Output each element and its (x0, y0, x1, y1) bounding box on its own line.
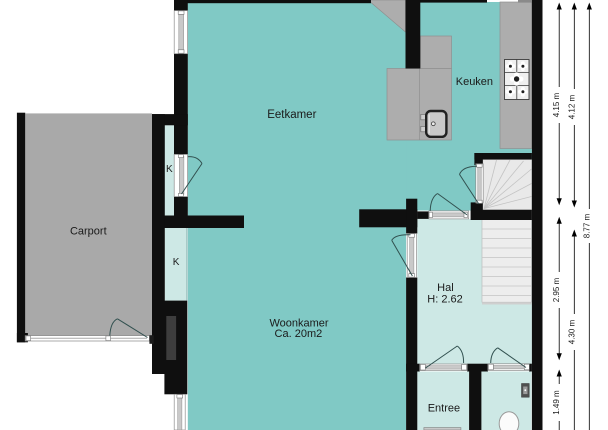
svg-text:4.30 m: 4.30 m (567, 319, 576, 344)
svg-text:2.95 m: 2.95 m (552, 277, 561, 302)
svg-text:Eetkamer: Eetkamer (267, 109, 316, 121)
svg-text:K: K (173, 257, 180, 268)
svg-text:Carport: Carport (70, 226, 107, 238)
svg-text:Hal: Hal (437, 282, 454, 294)
svg-text:K: K (166, 164, 173, 175)
svg-text:Entree: Entree (428, 403, 460, 415)
svg-text:8.77 m: 8.77 m (582, 213, 591, 238)
svg-text:1.49 m: 1.49 m (552, 390, 561, 415)
svg-text:4.15 m: 4.15 m (552, 92, 561, 117)
svg-text:Keuken: Keuken (456, 76, 493, 88)
svg-text:Ca. 20m2: Ca. 20m2 (275, 328, 323, 340)
svg-text:H: 2.62: H: 2.62 (427, 293, 462, 305)
svg-text:4.12 m: 4.12 m (567, 94, 576, 119)
